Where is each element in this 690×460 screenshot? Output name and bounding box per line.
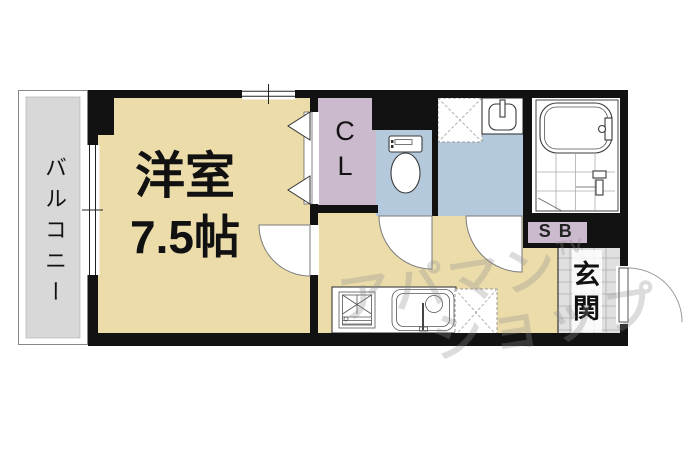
balcony-label: バルコニー (36, 138, 70, 328)
main-room-size: 7.5帖 (84, 206, 286, 268)
floor-plan-page: バルコニー 洋室 7.5帖 CL SB 玄関 アパマンTV ショップ (0, 0, 690, 460)
kitchen-counter (332, 287, 456, 333)
storage-box-label: SB (528, 221, 587, 243)
toilet-icon (389, 136, 422, 193)
main-room-name: 洋室 (84, 146, 286, 206)
main-room-label: 洋室 7.5帖 (84, 146, 286, 268)
refrigerator-space-icon (455, 289, 497, 336)
entrance-label: 玄関 (574, 254, 604, 334)
front-door (619, 268, 682, 322)
closet-label: CL (333, 114, 357, 184)
vanity-sink-icon (482, 98, 523, 134)
washing-machine-space-icon (438, 98, 482, 142)
bathtub-icon (540, 103, 612, 153)
